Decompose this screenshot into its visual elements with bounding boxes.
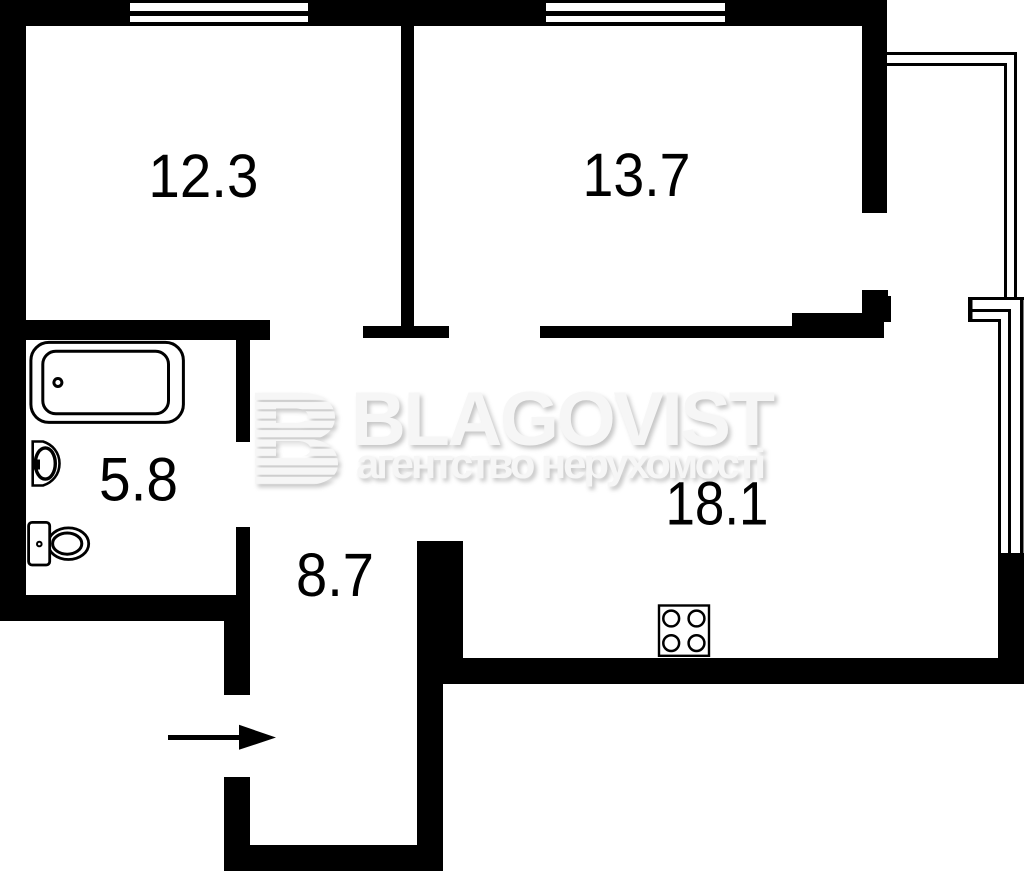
- svg-text:18.1: 18.1: [666, 470, 769, 538]
- svg-text:8.7: 8.7: [296, 541, 374, 609]
- svg-text:12.3: 12.3: [148, 142, 258, 210]
- svg-text:5.8: 5.8: [99, 446, 178, 514]
- svg-text:13.7: 13.7: [583, 141, 691, 209]
